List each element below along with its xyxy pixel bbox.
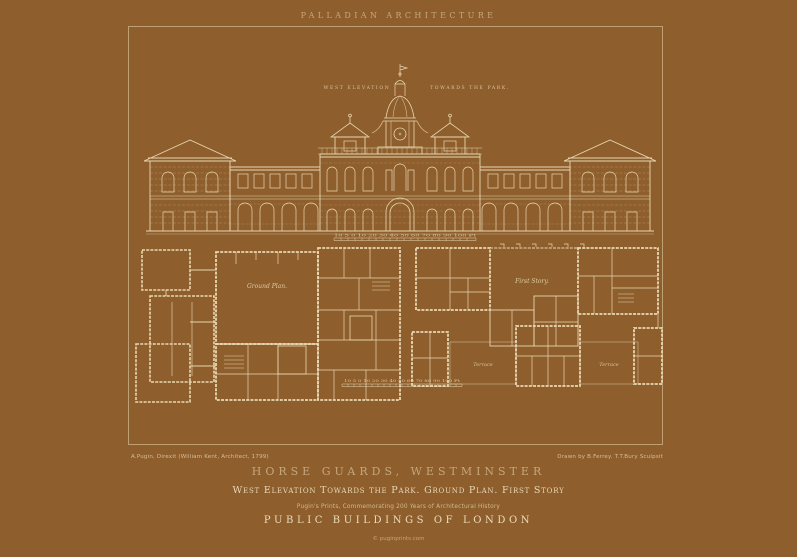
first-story-plan-drawing: First Story. Terrace Terrace [412, 244, 662, 386]
plate-note: Pugin's Prints, Commemorating 200 Years … [0, 504, 797, 510]
print-page: PALLADIAN ARCHITECTURE [0, 0, 797, 557]
plan-scale-bar: 10 5 0 10 20 30 40 50 60 70 80 90 100 Ft [342, 379, 462, 387]
clock-cupola [372, 64, 428, 154]
central-block [318, 148, 482, 231]
terrace-left-label: Terrace [473, 362, 492, 368]
credit-architect: A.Pugin, Direxit (William Kent, Architec… [131, 454, 269, 460]
copyright-line: © puginprints.com [0, 536, 797, 542]
series-footer: PUBLIC BUILDINGS OF LONDON [0, 515, 797, 526]
elevation-label-right: TOWARDS THE PARK. [430, 85, 510, 91]
elevation-label-left: WEST ELEVATION [324, 85, 391, 91]
plate-title: HORSE GUARDS, WESTMINSTER [0, 465, 797, 478]
first-story-label: First Story. [514, 278, 549, 285]
engraving-artwork: WEST ELEVATION TOWARDS THE PARK. 10 5 0 … [128, 26, 663, 445]
elevation-scale-text: 10 5 0 10 20 30 40 50 60 70 80 90 100 Ft [334, 234, 477, 238]
plate-subtitle: West Elevation Towards the Park. Ground … [0, 485, 797, 496]
ground-plan-label: Ground Plan. [247, 283, 287, 290]
series-header: PALLADIAN ARCHITECTURE [0, 11, 797, 20]
credit-engraver: Drawn by B.Ferrey. T.T.Bury Sculpsit [557, 454, 663, 460]
terrace-right-label: Terrace [599, 362, 618, 368]
elevation-scale-bar: 10 5 0 10 20 30 40 50 60 70 80 90 100 Ft [334, 234, 477, 241]
plan-scale-text: 10 5 0 10 20 30 40 50 60 70 80 90 100 Ft [344, 379, 461, 383]
west-elevation-drawing: WEST ELEVATION TOWARDS THE PARK. 10 5 0 … [144, 64, 656, 241]
